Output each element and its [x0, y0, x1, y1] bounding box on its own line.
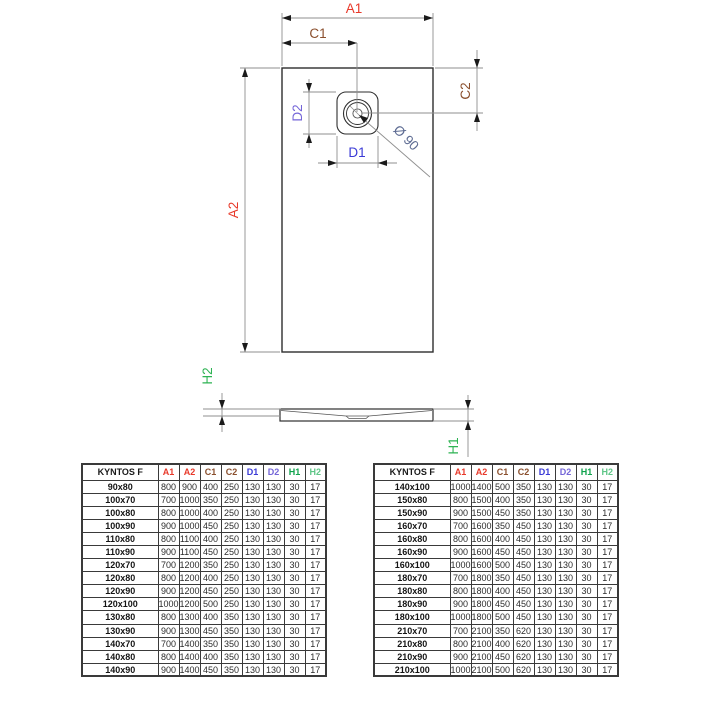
value-cell: 250	[221, 559, 242, 572]
value-cell: 130	[242, 480, 263, 493]
size-cell: 150x90	[374, 506, 450, 519]
size-cell: 180x100	[374, 611, 450, 624]
value-cell: 130	[555, 624, 576, 637]
spec-row-140x80: 140x8080014004003501301303017	[82, 650, 326, 663]
value-cell: 900	[450, 545, 471, 558]
value-cell: 30	[576, 572, 597, 585]
size-cell: 100x90	[82, 519, 158, 532]
value-cell: 30	[284, 663, 305, 676]
value-cell: 130	[242, 611, 263, 624]
size-cell: 180x90	[374, 598, 450, 611]
value-cell: 1400	[179, 650, 200, 663]
value-cell: 500	[492, 559, 513, 572]
value-cell: 400	[492, 532, 513, 545]
spec-row-120x80: 120x8080012004002501301303017	[82, 572, 326, 585]
value-cell: 30	[284, 493, 305, 506]
value-cell: 17	[305, 572, 326, 585]
value-cell: 30	[576, 663, 597, 676]
value-cell: 450	[200, 545, 221, 558]
column-header-d2: D2	[263, 464, 284, 480]
value-cell: 450	[200, 519, 221, 532]
value-cell: 130	[555, 598, 576, 611]
value-cell: 30	[284, 611, 305, 624]
spec-row-210x100: 210x100100021005006201301303017	[374, 663, 618, 676]
value-cell: 1500	[471, 493, 492, 506]
column-header-h1: H1	[284, 464, 305, 480]
value-cell: 17	[597, 506, 618, 519]
value-cell: 17	[597, 545, 618, 558]
value-cell: 1300	[179, 611, 200, 624]
value-cell: 130	[242, 545, 263, 558]
value-cell: 700	[450, 572, 471, 585]
column-header-c1: C1	[492, 464, 513, 480]
value-cell: 700	[450, 519, 471, 532]
value-cell: 2100	[471, 624, 492, 637]
value-cell: 350	[513, 493, 534, 506]
value-cell: 1000	[179, 493, 200, 506]
column-header-c2: C2	[513, 464, 534, 480]
value-cell: 620	[513, 663, 534, 676]
value-cell: 900	[450, 598, 471, 611]
value-cell: 130	[555, 663, 576, 676]
value-cell: 130	[242, 506, 263, 519]
value-cell: 130	[534, 506, 555, 519]
column-header-h1: H1	[576, 464, 597, 480]
header-row: KYNTOS FA1A2C1C2D1D2H1H2	[82, 464, 326, 480]
value-cell: 17	[305, 650, 326, 663]
value-cell: 1600	[471, 545, 492, 558]
value-cell: 900	[158, 663, 179, 676]
value-cell: 350	[221, 650, 242, 663]
value-cell: 1400	[179, 637, 200, 650]
spec-row-180x80: 180x8080018004004501301303017	[374, 585, 618, 598]
value-cell: 350	[221, 663, 242, 676]
value-cell: 130	[534, 624, 555, 637]
size-cell: 110x80	[82, 532, 158, 545]
size-cell: 130x90	[82, 624, 158, 637]
dim-label-c1: C1	[309, 26, 326, 41]
value-cell: 400	[492, 637, 513, 650]
value-cell: 130	[263, 572, 284, 585]
value-cell: 130	[263, 545, 284, 558]
value-cell: 450	[513, 611, 534, 624]
size-cell: 140x90	[82, 663, 158, 676]
value-cell: 130	[534, 532, 555, 545]
value-cell: 130	[555, 493, 576, 506]
value-cell: 30	[576, 637, 597, 650]
value-cell: 400	[200, 650, 221, 663]
value-cell: 17	[597, 637, 618, 650]
value-cell: 450	[492, 506, 513, 519]
spec-row-120x90: 120x9090012004502501301303017	[82, 585, 326, 598]
value-cell: 700	[450, 624, 471, 637]
value-cell: 250	[221, 506, 242, 519]
value-cell: 130	[242, 624, 263, 637]
spec-row-210x70: 210x7070021003506201301303017	[374, 624, 618, 637]
value-cell: 130	[534, 559, 555, 572]
value-cell: 17	[597, 559, 618, 572]
value-cell: 17	[597, 663, 618, 676]
size-cell: 120x80	[82, 572, 158, 585]
value-cell: 17	[305, 480, 326, 493]
value-cell: 2100	[471, 637, 492, 650]
size-cell: 130x80	[82, 611, 158, 624]
value-cell: 450	[513, 585, 534, 598]
column-header-kyntos-f: KYNTOS F	[374, 464, 450, 480]
value-cell: 800	[450, 532, 471, 545]
value-cell: 800	[158, 611, 179, 624]
size-cell: 160x80	[374, 532, 450, 545]
value-cell: 350	[492, 519, 513, 532]
size-cell: 120x90	[82, 585, 158, 598]
value-cell: 450	[513, 559, 534, 572]
value-cell: 450	[492, 598, 513, 611]
side-extension-lines	[203, 393, 474, 457]
value-cell: 350	[492, 624, 513, 637]
spec-row-210x90: 210x9090021004506201301303017	[374, 650, 618, 663]
value-cell: 1100	[179, 532, 200, 545]
spec-row-210x80: 210x8080021004006201301303017	[374, 637, 618, 650]
value-cell: 17	[597, 611, 618, 624]
size-cell: 210x100	[374, 663, 450, 676]
column-header-c2: C2	[221, 464, 242, 480]
value-cell: 130	[534, 637, 555, 650]
value-cell: 400	[200, 611, 221, 624]
value-cell: 130	[242, 598, 263, 611]
value-cell: 17	[305, 611, 326, 624]
value-cell: 800	[158, 480, 179, 493]
value-cell: 17	[597, 480, 618, 493]
dim-label-h2: H2	[200, 367, 215, 384]
value-cell: 17	[597, 598, 618, 611]
spec-row-110x90: 110x9090011004502501301303017	[82, 545, 326, 558]
spec-table-right: KYNTOS FA1A2C1C2D1D2H1H2140x100100014005…	[373, 463, 619, 677]
value-cell: 30	[576, 506, 597, 519]
value-cell: 17	[597, 493, 618, 506]
value-cell: 17	[597, 572, 618, 585]
value-cell: 1800	[471, 585, 492, 598]
value-cell: 130	[263, 598, 284, 611]
value-cell: 350	[221, 611, 242, 624]
spec-row-160x70: 160x7070016003504501301303017	[374, 519, 618, 532]
value-cell: 800	[158, 506, 179, 519]
value-cell: 130	[263, 650, 284, 663]
spec-row-160x80: 160x8080016004004501301303017	[374, 532, 618, 545]
value-cell: 900	[450, 650, 471, 663]
value-cell: 350	[200, 637, 221, 650]
value-cell: 130	[534, 545, 555, 558]
spec-row-120x70: 120x7070012003502501301303017	[82, 559, 326, 572]
value-cell: 130	[242, 519, 263, 532]
value-cell: 130	[555, 572, 576, 585]
value-cell: 1600	[471, 532, 492, 545]
value-cell: 1000	[179, 506, 200, 519]
value-cell: 350	[513, 480, 534, 493]
value-cell: 800	[450, 637, 471, 650]
value-cell: 800	[158, 532, 179, 545]
value-cell: 400	[200, 532, 221, 545]
spec-row-100x70: 100x7070010003502501301303017	[82, 493, 326, 506]
value-cell: 1200	[179, 598, 200, 611]
value-cell: 450	[492, 650, 513, 663]
value-cell: 30	[284, 506, 305, 519]
value-cell: 17	[597, 585, 618, 598]
value-cell: 450	[200, 624, 221, 637]
size-cell: 160x90	[374, 545, 450, 558]
dim-label-a1: A1	[346, 1, 363, 16]
value-cell: 800	[450, 493, 471, 506]
value-cell: 1000	[450, 559, 471, 572]
value-cell: 30	[576, 493, 597, 506]
value-cell: 130	[534, 611, 555, 624]
size-cell: 110x90	[82, 545, 158, 558]
size-cell: 160x70	[374, 519, 450, 532]
value-cell: 900	[158, 624, 179, 637]
size-cell: 180x80	[374, 585, 450, 598]
value-cell: 620	[513, 637, 534, 650]
column-header-a1: A1	[158, 464, 179, 480]
value-cell: 30	[284, 650, 305, 663]
value-cell: 130	[242, 663, 263, 676]
value-cell: 130	[263, 663, 284, 676]
value-cell: 30	[576, 585, 597, 598]
dim-label-c2: C2	[458, 82, 473, 99]
column-header-kyntos-f: KYNTOS F	[82, 464, 158, 480]
value-cell: 620	[513, 624, 534, 637]
value-cell: 30	[284, 532, 305, 545]
value-cell: 130	[263, 519, 284, 532]
dim-label-d2: D2	[290, 104, 305, 121]
spec-row-180x100: 180x100100018005004501301303017	[374, 611, 618, 624]
value-cell: 1200	[179, 559, 200, 572]
value-cell: 130	[242, 572, 263, 585]
value-cell: 30	[576, 559, 597, 572]
value-cell: 130	[555, 559, 576, 572]
value-cell: 17	[597, 650, 618, 663]
value-cell: 130	[263, 611, 284, 624]
value-cell: 900	[158, 585, 179, 598]
value-cell: 17	[305, 493, 326, 506]
column-header-d2: D2	[555, 464, 576, 480]
value-cell: 17	[305, 506, 326, 519]
value-cell: 130	[263, 493, 284, 506]
dim-label-a2: A2	[226, 202, 241, 219]
value-cell: 500	[492, 611, 513, 624]
value-cell: 450	[513, 532, 534, 545]
column-header-h2: H2	[305, 464, 326, 480]
spec-table-left: KYNTOS FA1A2C1C2D1D2H1H290x8080090040025…	[81, 463, 327, 677]
value-cell: 17	[305, 663, 326, 676]
value-cell: 350	[221, 624, 242, 637]
spec-row-180x90: 180x9090018004504501301303017	[374, 598, 618, 611]
shower-tray-spec-sheet: A1 C1 A2 C2 D2 D1 Ø 90 H2	[0, 0, 720, 720]
size-cell: 100x70	[82, 493, 158, 506]
spec-row-140x100: 140x100100014005003501301303017	[374, 480, 618, 493]
spec-row-180x70: 180x7070018003504501301303017	[374, 572, 618, 585]
value-cell: 30	[284, 585, 305, 598]
value-cell: 250	[221, 519, 242, 532]
value-cell: 130	[555, 545, 576, 558]
size-cell: 90x80	[82, 480, 158, 493]
value-cell: 17	[305, 519, 326, 532]
value-cell: 30	[576, 532, 597, 545]
value-cell: 17	[305, 585, 326, 598]
spec-row-150x90: 150x9090015004503501301303017	[374, 506, 618, 519]
value-cell: 130	[534, 650, 555, 663]
value-cell: 1400	[179, 663, 200, 676]
value-cell: 30	[284, 519, 305, 532]
column-header-h2: H2	[597, 464, 618, 480]
value-cell: 130	[534, 572, 555, 585]
technical-drawing: A1 C1 A2 C2 D2 D1 Ø 90 H2	[0, 0, 720, 460]
value-cell: 350	[221, 637, 242, 650]
value-cell: 1800	[471, 572, 492, 585]
value-cell: 17	[305, 637, 326, 650]
value-cell: 130	[242, 650, 263, 663]
value-cell: 30	[576, 624, 597, 637]
value-cell: 400	[200, 480, 221, 493]
value-cell: 500	[200, 598, 221, 611]
value-cell: 800	[158, 572, 179, 585]
size-cell: 120x100	[82, 598, 158, 611]
value-cell: 130	[263, 506, 284, 519]
value-cell: 700	[158, 637, 179, 650]
value-cell: 130	[534, 519, 555, 532]
size-cell: 210x80	[374, 637, 450, 650]
column-header-c1: C1	[200, 464, 221, 480]
value-cell: 800	[450, 585, 471, 598]
value-cell: 130	[263, 585, 284, 598]
spec-row-100x90: 100x9090010004502501301303017	[82, 519, 326, 532]
value-cell: 130	[263, 532, 284, 545]
value-cell: 30	[284, 637, 305, 650]
value-cell: 450	[200, 663, 221, 676]
size-cell: 180x70	[374, 572, 450, 585]
value-cell: 130	[263, 480, 284, 493]
value-cell: 1600	[471, 559, 492, 572]
value-cell: 30	[576, 480, 597, 493]
value-cell: 130	[534, 480, 555, 493]
value-cell: 900	[158, 545, 179, 558]
value-cell: 1000	[450, 663, 471, 676]
size-cell: 150x80	[374, 493, 450, 506]
size-cell: 210x90	[374, 650, 450, 663]
value-cell: 30	[576, 611, 597, 624]
value-cell: 30	[284, 598, 305, 611]
value-cell: 130	[555, 519, 576, 532]
value-cell: 500	[492, 663, 513, 676]
value-cell: 2100	[471, 650, 492, 663]
value-cell: 1000	[179, 519, 200, 532]
value-cell: 250	[221, 532, 242, 545]
value-cell: 250	[221, 493, 242, 506]
value-cell: 130	[555, 637, 576, 650]
value-cell: 800	[158, 650, 179, 663]
header-row: KYNTOS FA1A2C1C2D1D2H1H2	[374, 464, 618, 480]
spec-row-150x80: 150x8080015004003501301303017	[374, 493, 618, 506]
spec-row-110x80: 110x8080011004002501301303017	[82, 532, 326, 545]
value-cell: 400	[200, 506, 221, 519]
dim-label-d1: D1	[348, 145, 365, 160]
value-cell: 17	[597, 519, 618, 532]
size-cell: 160x100	[374, 559, 450, 572]
size-cell: 140x70	[82, 637, 158, 650]
column-header-d1: D1	[242, 464, 263, 480]
value-cell: 30	[576, 650, 597, 663]
value-cell: 1200	[179, 585, 200, 598]
spec-row-140x90: 140x9090014004503501301303017	[82, 663, 326, 676]
value-cell: 1000	[158, 598, 179, 611]
value-cell: 130	[555, 506, 576, 519]
value-cell: 450	[200, 585, 221, 598]
tray-side-view	[280, 409, 433, 421]
value-cell: 130	[242, 493, 263, 506]
value-cell: 400	[200, 572, 221, 585]
size-cell: 120x70	[82, 559, 158, 572]
value-cell: 30	[284, 480, 305, 493]
value-cell: 130	[555, 480, 576, 493]
column-header-a2: A2	[179, 464, 200, 480]
value-cell: 17	[305, 559, 326, 572]
value-cell: 17	[305, 598, 326, 611]
value-cell: 1400	[471, 480, 492, 493]
value-cell: 2100	[471, 663, 492, 676]
value-cell: 17	[305, 545, 326, 558]
spec-row-100x80: 100x8080010004002501301303017	[82, 506, 326, 519]
value-cell: 30	[284, 559, 305, 572]
value-cell: 30	[576, 519, 597, 532]
value-cell: 450	[513, 572, 534, 585]
value-cell: 30	[284, 572, 305, 585]
value-cell: 130	[555, 532, 576, 545]
value-cell: 1100	[179, 545, 200, 558]
value-cell: 130	[534, 598, 555, 611]
value-cell: 30	[576, 545, 597, 558]
value-cell: 500	[492, 480, 513, 493]
column-header-a1: A1	[450, 464, 471, 480]
value-cell: 1600	[471, 519, 492, 532]
value-cell: 900	[179, 480, 200, 493]
value-cell: 250	[221, 480, 242, 493]
value-cell: 130	[555, 650, 576, 663]
column-header-d1: D1	[534, 464, 555, 480]
spec-row-130x90: 130x9090013004503501301303017	[82, 624, 326, 637]
value-cell: 130	[242, 532, 263, 545]
value-cell: 1500	[471, 506, 492, 519]
value-cell: 30	[284, 545, 305, 558]
value-cell: 350	[200, 493, 221, 506]
value-cell: 450	[513, 598, 534, 611]
value-cell: 130	[534, 493, 555, 506]
value-cell: 30	[284, 624, 305, 637]
value-cell: 900	[450, 506, 471, 519]
value-cell: 30	[576, 598, 597, 611]
value-cell: 1300	[179, 624, 200, 637]
spec-row-90x80: 90x808009004002501301303017	[82, 480, 326, 493]
value-cell: 350	[513, 506, 534, 519]
value-cell: 17	[305, 624, 326, 637]
spec-row-140x70: 140x7070014003503501301303017	[82, 637, 326, 650]
value-cell: 900	[158, 519, 179, 532]
value-cell: 250	[221, 585, 242, 598]
value-cell: 700	[158, 559, 179, 572]
value-cell: 350	[200, 559, 221, 572]
value-cell: 1800	[471, 611, 492, 624]
value-cell: 250	[221, 572, 242, 585]
value-cell: 450	[513, 545, 534, 558]
value-cell: 130	[555, 611, 576, 624]
value-cell: 130	[242, 559, 263, 572]
